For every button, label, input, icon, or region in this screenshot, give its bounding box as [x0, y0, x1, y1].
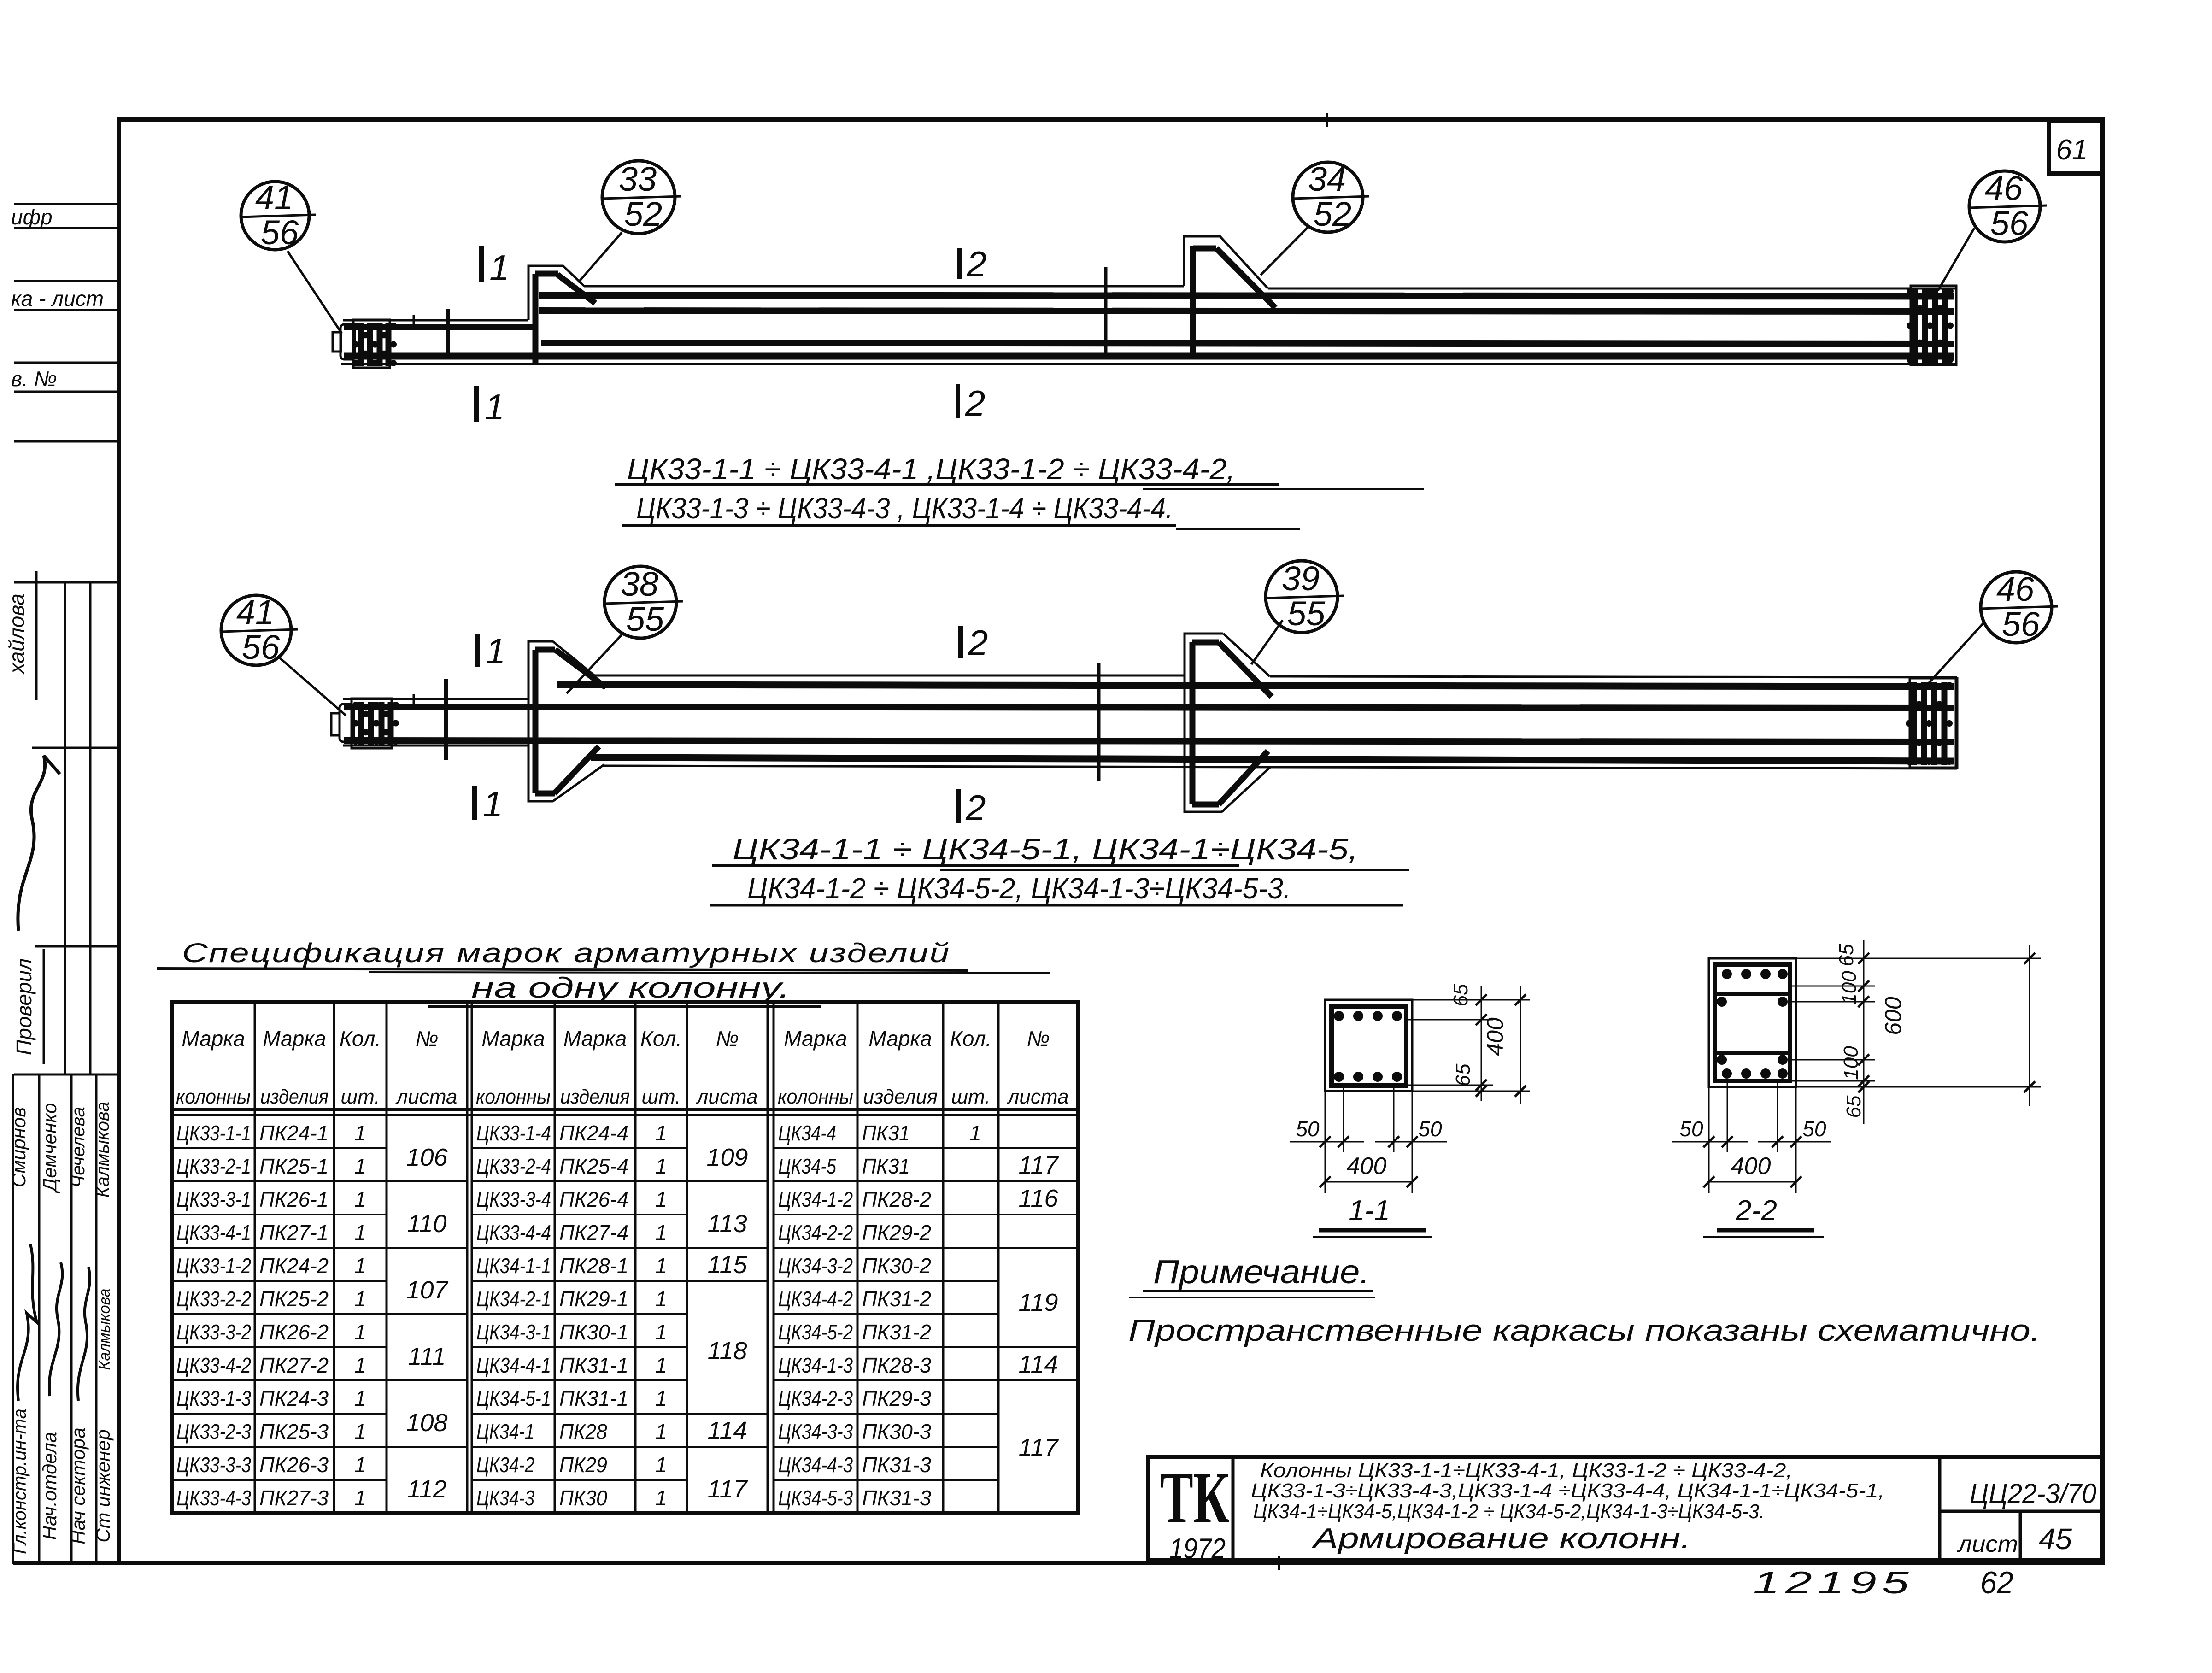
- svg-text:ПК27-4: ПК27-4: [559, 1221, 628, 1244]
- svg-text:Марка: Марка: [263, 1027, 326, 1051]
- svg-text:Пространственные каркасы пок: Пространственные каркасы показаны схемат…: [1128, 1313, 2041, 1347]
- svg-text:113: 113: [707, 1210, 747, 1238]
- svg-text:ка - лист: ка - лист: [11, 287, 104, 311]
- svg-text:ЦК34-5-3: ЦК34-5-3: [778, 1486, 853, 1510]
- svg-text:1: 1: [655, 1386, 667, 1410]
- svg-text:ПК30-1: ПК30-1: [559, 1320, 628, 1344]
- svg-text:1: 1: [655, 1221, 667, 1244]
- svg-text:ПК26-3: ПК26-3: [259, 1453, 329, 1477]
- svg-text:115: 115: [707, 1251, 747, 1279]
- svg-text:изделия: изделия: [260, 1086, 329, 1108]
- svg-text:ПК31-2: ПК31-2: [862, 1287, 931, 1311]
- svg-text:1: 1: [655, 1254, 667, 1278]
- svg-text:41: 41: [255, 178, 293, 217]
- svg-text:ПК27-3: ПК27-3: [259, 1486, 329, 1510]
- svg-text:1: 1: [655, 1320, 667, 1344]
- svg-text:Марка: Марка: [182, 1027, 245, 1051]
- svg-text:ПК29-2: ПК29-2: [862, 1221, 931, 1244]
- svg-text:изделия: изделия: [863, 1086, 938, 1108]
- svg-text:ПК30: ПК30: [559, 1486, 607, 1510]
- svg-text:1: 1: [655, 1486, 667, 1510]
- svg-text:1: 1: [354, 1453, 366, 1477]
- svg-text:1: 1: [354, 1121, 366, 1145]
- svg-text:ЦК34-4-2: ЦК34-4-2: [778, 1287, 853, 1311]
- svg-text:ПК30-3: ПК30-3: [862, 1420, 931, 1444]
- svg-text:1: 1: [354, 1353, 366, 1377]
- svg-text:ЦК33-1-1 ÷ ЦК33-4-1 ,ЦК33-1-2: ЦК33-1-1 ÷ ЦК33-4-1 ,ЦК33-1-2 ÷ ЦК33-4-2…: [627, 452, 1235, 486]
- svg-text:33: 33: [619, 160, 657, 198]
- svg-text:65: 65: [1452, 1063, 1474, 1086]
- svg-text:50: 50: [1296, 1117, 1320, 1141]
- svg-text:ЦК34-2-1: ЦК34-2-1: [476, 1287, 551, 1311]
- svg-text:2-2: 2-2: [1735, 1195, 1777, 1227]
- svg-text:ПК29-1: ПК29-1: [559, 1287, 628, 1311]
- svg-text:ПК31: ПК31: [862, 1154, 910, 1178]
- svg-text:ЦК34-1: ЦК34-1: [476, 1420, 534, 1444]
- svg-text:ПК24-1: ПК24-1: [259, 1121, 329, 1145]
- svg-text:ЦК34-4-1: ЦК34-4-1: [476, 1353, 551, 1377]
- svg-text:ПК29-3: ПК29-3: [862, 1386, 931, 1410]
- svg-text:1972: 1972: [1169, 1533, 1226, 1565]
- svg-text:116: 116: [1018, 1185, 1058, 1212]
- svg-text:ПК30-2: ПК30-2: [862, 1254, 931, 1278]
- svg-text:ПК26-4: ПК26-4: [559, 1187, 628, 1211]
- svg-text:100: 100: [1840, 1046, 1862, 1080]
- svg-text:1: 1: [354, 1287, 366, 1311]
- svg-text:106: 106: [406, 1144, 448, 1171]
- svg-text:39: 39: [1282, 559, 1320, 598]
- svg-text:112: 112: [407, 1475, 446, 1503]
- svg-text:ЦК34-3: ЦК34-3: [476, 1486, 534, 1510]
- svg-text:ПК25-2: ПК25-2: [259, 1287, 329, 1311]
- svg-text:ЦК34-1-2: ЦК34-1-2: [778, 1187, 853, 1211]
- svg-text:114: 114: [707, 1417, 747, 1444]
- svg-text:Кол.: Кол.: [640, 1027, 682, 1051]
- svg-text:50: 50: [1679, 1117, 1703, 1141]
- svg-text:в. №: в. №: [11, 367, 57, 391]
- svg-text:№: №: [1027, 1027, 1050, 1051]
- svg-text:400: 400: [1347, 1153, 1387, 1180]
- svg-text:ПК31-1: ПК31-1: [559, 1386, 628, 1410]
- svg-text:2: 2: [965, 383, 985, 423]
- svg-text:12195: 12195: [1753, 1565, 1914, 1600]
- svg-text:шт.: шт.: [642, 1086, 681, 1108]
- svg-text:1: 1: [655, 1154, 667, 1178]
- svg-text:ифр: ифр: [11, 205, 53, 229]
- svg-text:Ст инженер: Ст инженер: [92, 1429, 114, 1543]
- svg-text:ЦК34-2: ЦК34-2: [476, 1453, 534, 1477]
- svg-text:1: 1: [655, 1187, 667, 1211]
- svg-text:ПК27-1: ПК27-1: [259, 1221, 329, 1244]
- svg-text:114: 114: [1018, 1350, 1058, 1378]
- svg-text:1: 1: [655, 1353, 667, 1377]
- svg-text:1: 1: [354, 1320, 366, 1344]
- svg-text:Калмыкова: Калмыкова: [93, 1102, 113, 1198]
- svg-text:118: 118: [707, 1337, 747, 1365]
- svg-text:Марка: Марка: [563, 1027, 627, 1051]
- svg-text:ЦК33-2-1: ЦК33-2-1: [176, 1154, 251, 1178]
- svg-text:50: 50: [1802, 1117, 1826, 1141]
- svg-text:109: 109: [706, 1144, 748, 1171]
- svg-text:ТК: ТК: [1160, 1456, 1229, 1538]
- svg-text:52: 52: [624, 195, 662, 233]
- svg-text:55: 55: [626, 600, 664, 638]
- svg-text:лист: лист: [1957, 1531, 2018, 1557]
- svg-text:Кол.: Кол.: [950, 1027, 992, 1051]
- svg-text:2: 2: [965, 787, 986, 828]
- svg-text:117: 117: [707, 1475, 748, 1503]
- svg-text:ПК31-3: ПК31-3: [862, 1486, 931, 1510]
- svg-text:55: 55: [1287, 594, 1326, 633]
- svg-text:41: 41: [236, 593, 274, 631]
- svg-text:ЦК33-4-1: ЦК33-4-1: [176, 1221, 251, 1244]
- svg-text:50: 50: [1418, 1117, 1442, 1141]
- svg-text:ПК25-3: ПК25-3: [259, 1420, 329, 1444]
- svg-text:ЦК34-5-2: ЦК34-5-2: [778, 1320, 853, 1344]
- svg-text:34: 34: [1308, 160, 1346, 198]
- svg-text:1: 1: [354, 1154, 366, 1178]
- svg-text:Гл.констр.ин-та: Гл.констр.ин-та: [10, 1409, 30, 1554]
- svg-text:56: 56: [242, 628, 280, 666]
- svg-text:ЦК33-3-3: ЦК33-3-3: [176, 1453, 251, 1477]
- svg-text:Чечелева: Чечелева: [68, 1107, 88, 1188]
- svg-text:ПК28: ПК28: [559, 1420, 607, 1444]
- svg-text:119: 119: [1018, 1289, 1058, 1316]
- svg-text:1: 1: [485, 387, 505, 427]
- svg-text:ПК31-2: ПК31-2: [862, 1320, 931, 1344]
- svg-text:ПК28-1: ПК28-1: [559, 1254, 628, 1278]
- svg-text:Нач сектора: Нач сектора: [67, 1427, 89, 1544]
- svg-text:Демченко: Демченко: [39, 1103, 60, 1194]
- svg-text:колонны: колонны: [778, 1086, 853, 1108]
- svg-text:шт.: шт.: [341, 1086, 380, 1108]
- svg-text:ПК24-4: ПК24-4: [559, 1121, 628, 1145]
- svg-text:ЦК34-1-3: ЦК34-1-3: [778, 1353, 853, 1377]
- svg-text:ЦК33-1-3 ÷ ЦК33-4-3 , ЦК33-1-: ЦК33-1-3 ÷ ЦК33-4-3 , ЦК33-1-4 ÷ ЦК33-4-…: [636, 492, 1173, 525]
- svg-text:52: 52: [1314, 195, 1351, 233]
- svg-text:1: 1: [354, 1420, 366, 1444]
- svg-text:хайлова: хайлова: [5, 593, 29, 675]
- svg-text:ЦК33-1-1: ЦК33-1-1: [176, 1121, 251, 1145]
- svg-text:108: 108: [406, 1409, 447, 1437]
- svg-text:65: 65: [1842, 1095, 1865, 1118]
- svg-text:ЦК34-5-1: ЦК34-5-1: [476, 1386, 551, 1410]
- svg-text:56: 56: [261, 213, 299, 252]
- svg-text:Колонны ЦК33-1-1÷ЦК33-4-1, ЦК: Колонны ЦК33-1-1÷ЦК33-4-1, ЦК33-1-2 ÷ ЦК…: [1260, 1459, 1792, 1482]
- svg-text:1: 1: [969, 1121, 981, 1145]
- svg-text:117: 117: [1018, 1434, 1059, 1462]
- svg-text:ЦК34-3-3: ЦК34-3-3: [778, 1420, 853, 1444]
- svg-text:№: №: [416, 1027, 439, 1051]
- svg-text:Примечание.: Примечание.: [1153, 1254, 1370, 1291]
- svg-text:1-1: 1-1: [1349, 1195, 1390, 1227]
- svg-text:Проверил: Проверил: [12, 958, 36, 1055]
- svg-text:1: 1: [354, 1221, 366, 1244]
- svg-text:на одну колонну.: на одну колонну.: [471, 972, 790, 1004]
- svg-text:ЦК34-1-1: ЦК34-1-1: [476, 1254, 551, 1278]
- svg-text:111: 111: [408, 1343, 446, 1370]
- svg-text:45: 45: [2039, 1522, 2072, 1556]
- svg-text:1: 1: [655, 1420, 667, 1444]
- svg-text:ПК25-1: ПК25-1: [259, 1154, 329, 1178]
- svg-text:ЦК33-1-4: ЦК33-1-4: [476, 1121, 551, 1145]
- svg-text:107: 107: [406, 1276, 448, 1304]
- svg-text:ЦК34-1÷ЦК34-5,ЦК34-1-2 ÷ ЦК34-: ЦК34-1÷ЦК34-5,ЦК34-1-2 ÷ ЦК34-5-2,ЦК34-1…: [1253, 1500, 1765, 1523]
- svg-text:1: 1: [489, 247, 509, 288]
- svg-text:1: 1: [655, 1287, 667, 1311]
- svg-text:Марка: Марка: [481, 1027, 545, 1051]
- svg-text:ЦК33-1-2: ЦК33-1-2: [176, 1254, 251, 1278]
- svg-text:ЦК34-1-1 ÷ ЦК34-5-1, ЦК34-: ЦК34-1-1 ÷ ЦК34-5-1, ЦК34-1÷ЦК34-5,: [733, 833, 1358, 866]
- svg-text:Марка: Марка: [784, 1027, 847, 1051]
- svg-text:1: 1: [655, 1121, 667, 1145]
- svg-text:ЦК33-3-1: ЦК33-3-1: [176, 1187, 251, 1211]
- svg-text:ПК31-3: ПК31-3: [862, 1453, 931, 1477]
- svg-text:65: 65: [1835, 944, 1858, 966]
- svg-text:Калмыкова: Калмыкова: [96, 1289, 113, 1370]
- svg-text:Кол.: Кол.: [340, 1027, 381, 1051]
- svg-text:38: 38: [621, 565, 658, 603]
- svg-text:46: 46: [1985, 169, 2023, 207]
- svg-text:1: 1: [354, 1386, 366, 1410]
- svg-text:ПК31-1: ПК31-1: [559, 1353, 628, 1377]
- svg-text:ЦК33-4-4: ЦК33-4-4: [476, 1221, 551, 1244]
- svg-text:ЦК33-1-3: ЦК33-1-3: [176, 1386, 251, 1410]
- svg-text:ЦК34-2-3: ЦК34-2-3: [778, 1386, 853, 1410]
- svg-text:№: №: [716, 1027, 739, 1051]
- svg-text:400: 400: [1482, 1017, 1508, 1056]
- svg-text:ПК26-1: ПК26-1: [259, 1187, 329, 1211]
- svg-text:Армирование колонн.: Армирование колонн.: [1311, 1523, 1691, 1555]
- svg-text:ЦК34-3-1: ЦК34-3-1: [476, 1320, 551, 1344]
- svg-text:колонны: колонны: [176, 1086, 251, 1108]
- svg-text:ЦК33-3-4: ЦК33-3-4: [476, 1187, 551, 1211]
- svg-text:ЦЦ22-3/70: ЦЦ22-3/70: [1970, 1478, 2096, 1509]
- svg-text:ЦК33-4-2: ЦК33-4-2: [176, 1353, 251, 1377]
- svg-text:Нач.отдела: Нач.отдела: [39, 1432, 60, 1540]
- svg-text:2: 2: [966, 244, 986, 284]
- svg-text:Марка: Марка: [868, 1027, 932, 1051]
- svg-text:ПК28-2: ПК28-2: [862, 1187, 931, 1211]
- svg-text:600: 600: [1880, 997, 1906, 1035]
- svg-text:400: 400: [1731, 1153, 1771, 1180]
- svg-text:ЦК34-1-2 ÷ ЦК34-5-2, ЦК34-1-3: ЦК34-1-2 ÷ ЦК34-5-2, ЦК34-1-3÷ЦК34-5-3.: [747, 872, 1291, 905]
- svg-text:листа: листа: [1007, 1086, 1069, 1108]
- svg-text:ЦК33-2-3: ЦК33-2-3: [176, 1420, 251, 1444]
- svg-text:Спецификация марок арматур: Спецификация марок арматурных изделий: [182, 938, 951, 968]
- svg-text:ПК25-4: ПК25-4: [559, 1154, 628, 1178]
- svg-text:ПК28-3: ПК28-3: [862, 1353, 931, 1377]
- svg-text:листа: листа: [395, 1086, 458, 1108]
- svg-text:1: 1: [354, 1187, 366, 1211]
- svg-text:62: 62: [1980, 1565, 2013, 1600]
- svg-text:56: 56: [2002, 605, 2040, 643]
- svg-text:46: 46: [1996, 570, 2035, 608]
- svg-text:ЦК33-1-3÷ЦК33-4-3,ЦК33-1-4 ÷ЦК: ЦК33-1-3÷ЦК33-4-3,ЦК33-1-4 ÷ЦК33-4-4, ЦК…: [1251, 1479, 1884, 1502]
- svg-text:ЦК33-2-2: ЦК33-2-2: [176, 1287, 251, 1311]
- svg-text:ЦК33-2-4: ЦК33-2-4: [476, 1154, 551, 1178]
- svg-text:ЦК34-4-3: ЦК34-4-3: [778, 1453, 853, 1477]
- svg-text:ПК24-3: ПК24-3: [259, 1386, 329, 1410]
- svg-text:ПК31: ПК31: [862, 1121, 910, 1145]
- svg-text:ЦК33-3-2: ЦК33-3-2: [176, 1320, 251, 1344]
- svg-text:колонны: колонны: [476, 1086, 551, 1108]
- svg-text:ЦК34-2-2: ЦК34-2-2: [778, 1221, 853, 1244]
- svg-text:56: 56: [1990, 204, 2029, 242]
- svg-text:ПК24-2: ПК24-2: [259, 1254, 329, 1278]
- svg-text:листа: листа: [696, 1086, 758, 1108]
- svg-text:2: 2: [968, 622, 988, 663]
- svg-text:1: 1: [483, 784, 503, 824]
- svg-text:ПК26-2: ПК26-2: [259, 1320, 329, 1344]
- svg-text:1: 1: [486, 631, 505, 671]
- svg-text:1: 1: [354, 1486, 366, 1510]
- svg-text:ЦК34-4: ЦК34-4: [778, 1121, 836, 1145]
- svg-text:1: 1: [354, 1254, 366, 1278]
- svg-text:100: 100: [1838, 971, 1860, 1005]
- svg-text:шт.: шт.: [951, 1086, 991, 1108]
- svg-text:1: 1: [655, 1453, 667, 1477]
- svg-text:ЦК33-4-3: ЦК33-4-3: [176, 1486, 251, 1510]
- svg-text:ЦК34-5: ЦК34-5: [778, 1154, 836, 1178]
- svg-text:110: 110: [407, 1210, 446, 1238]
- svg-text:изделия: изделия: [560, 1086, 630, 1108]
- svg-text:61: 61: [2056, 134, 2088, 166]
- svg-text:ПК29: ПК29: [559, 1453, 607, 1477]
- svg-text:Смирнов: Смирнов: [8, 1107, 29, 1187]
- svg-text:ЦК34-3-2: ЦК34-3-2: [778, 1254, 853, 1278]
- svg-text:117: 117: [1018, 1151, 1059, 1179]
- svg-text:ПК27-2: ПК27-2: [259, 1353, 329, 1377]
- svg-text:65: 65: [1449, 984, 1472, 1006]
